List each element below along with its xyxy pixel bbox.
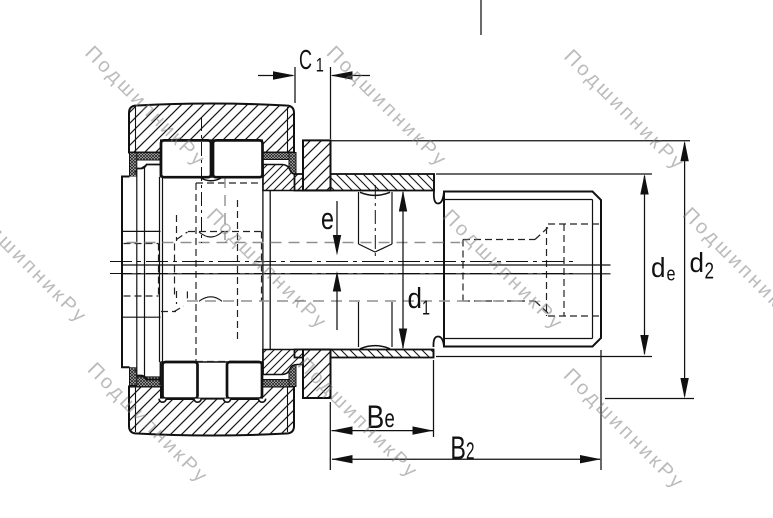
- svg-text:ПодшипникРу: ПодшипникРу: [202, 204, 332, 334]
- svg-text:2: 2: [705, 258, 715, 284]
- svg-text:2: 2: [466, 438, 475, 465]
- svg-text:ПодшипникРу: ПодшипникРу: [322, 42, 452, 172]
- svg-text:d: d: [408, 283, 423, 315]
- svg-text:ПодшипникРу: ПодшипникРу: [0, 198, 92, 328]
- svg-text:ПодшипникРу: ПодшипникРу: [293, 353, 423, 483]
- svg-text:1: 1: [422, 296, 430, 319]
- svg-text:d: d: [651, 252, 666, 283]
- svg-text:C: C: [299, 44, 312, 75]
- svg-text:ПодшипникРу: ПодшипникРу: [559, 364, 689, 494]
- svg-text:ПодшипникРу: ПодшипникРу: [559, 45, 689, 175]
- svg-text:d: d: [690, 247, 705, 278]
- svg-text:e: e: [321, 201, 334, 236]
- svg-text:1: 1: [316, 55, 324, 76]
- svg-text:e: e: [667, 263, 676, 286]
- svg-text:e: e: [385, 403, 395, 433]
- svg-text:B: B: [450, 430, 466, 466]
